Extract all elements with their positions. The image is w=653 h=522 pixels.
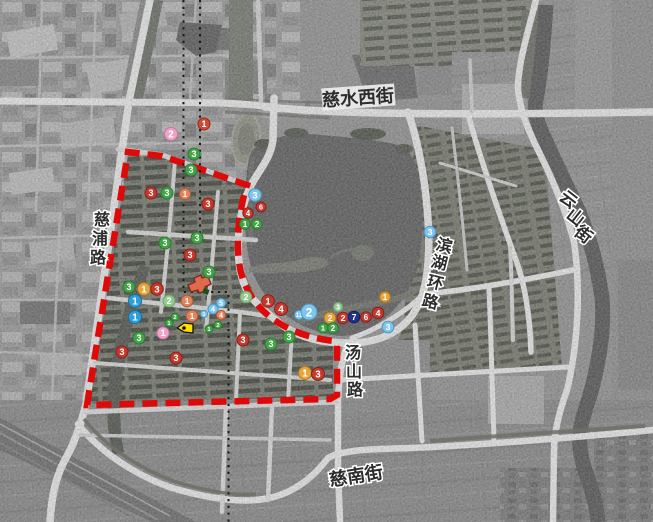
svg-text:1: 1 xyxy=(132,297,138,308)
svg-text:1: 1 xyxy=(201,119,206,129)
svg-text:3: 3 xyxy=(286,332,291,342)
svg-text:1: 1 xyxy=(243,220,248,229)
svg-text:3: 3 xyxy=(191,149,196,159)
svg-text:2: 2 xyxy=(244,292,249,302)
svg-text:1: 1 xyxy=(265,295,270,306)
svg-text:3: 3 xyxy=(164,188,169,198)
svg-text:3: 3 xyxy=(188,165,193,175)
svg-text:4: 4 xyxy=(246,209,251,218)
svg-text:2: 2 xyxy=(216,323,219,329)
svg-text:3: 3 xyxy=(148,188,153,198)
svg-text:6: 6 xyxy=(364,313,369,322)
svg-text:2: 2 xyxy=(173,315,176,321)
svg-text:2: 2 xyxy=(166,296,171,306)
svg-text:4: 4 xyxy=(219,313,223,320)
svg-text:3: 3 xyxy=(162,238,167,248)
svg-text:汤: 汤 xyxy=(345,344,361,362)
svg-text:3: 3 xyxy=(154,283,159,294)
svg-text:3: 3 xyxy=(205,199,210,209)
svg-text:3: 3 xyxy=(173,353,178,363)
svg-text:1: 1 xyxy=(383,293,388,302)
svg-text:1: 1 xyxy=(203,312,206,318)
svg-text:5: 5 xyxy=(219,301,223,308)
svg-text:1: 1 xyxy=(160,328,165,338)
svg-text:2: 2 xyxy=(168,130,174,141)
svg-text:4: 4 xyxy=(376,308,381,318)
svg-text:3: 3 xyxy=(240,335,245,345)
svg-text:3: 3 xyxy=(126,282,131,292)
svg-text:慈: 慈 xyxy=(94,210,110,229)
svg-text:路: 路 xyxy=(90,248,107,267)
svg-text:1: 1 xyxy=(185,296,190,306)
svg-text:1: 1 xyxy=(132,313,138,324)
svg-text:1: 1 xyxy=(321,324,325,333)
svg-text:2: 2 xyxy=(341,313,346,323)
svg-text:4: 4 xyxy=(278,305,284,316)
svg-text:3: 3 xyxy=(268,339,273,349)
svg-text:3: 3 xyxy=(336,305,340,312)
svg-text:山: 山 xyxy=(346,363,362,381)
svg-text:1: 1 xyxy=(141,283,146,294)
svg-text:1: 1 xyxy=(183,189,188,199)
svg-text:2: 2 xyxy=(255,220,260,229)
svg-text:1: 1 xyxy=(190,311,195,321)
svg-text:1: 1 xyxy=(302,369,308,380)
svg-text:2: 2 xyxy=(328,313,333,323)
svg-text:浦: 浦 xyxy=(92,229,108,248)
svg-text:3: 3 xyxy=(428,227,433,237)
svg-text:路: 路 xyxy=(347,380,364,399)
svg-text:3: 3 xyxy=(187,250,192,260)
svg-text:3: 3 xyxy=(386,322,391,332)
svg-text:3: 3 xyxy=(119,347,124,357)
svg-text:3: 3 xyxy=(252,189,257,200)
svg-text:2: 2 xyxy=(331,324,336,333)
svg-text:2: 2 xyxy=(306,305,313,319)
svg-text:3: 3 xyxy=(206,267,211,277)
svg-text:3: 3 xyxy=(315,370,321,381)
svg-text:3: 3 xyxy=(136,333,141,343)
svg-text:7: 7 xyxy=(352,312,357,322)
svg-text:6: 6 xyxy=(259,203,263,212)
svg-text:3: 3 xyxy=(194,233,199,243)
